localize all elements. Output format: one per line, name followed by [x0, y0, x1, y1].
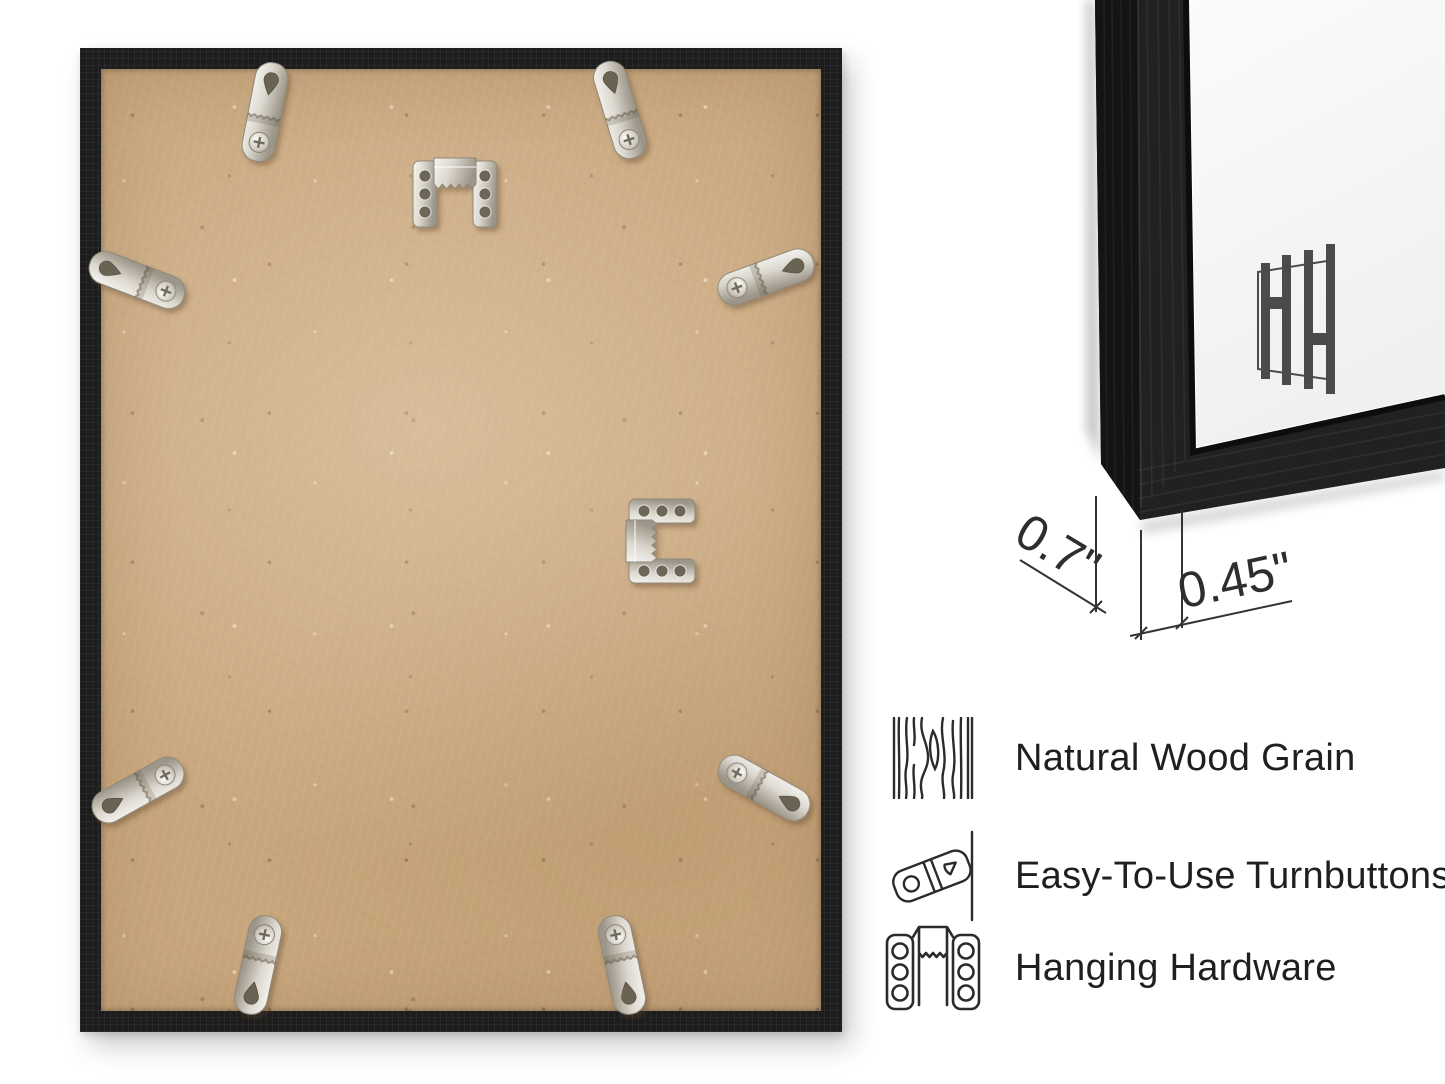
- product-image: 0.7" 0.45" Natural Wood G: [0, 0, 1445, 1084]
- feature-row-turnbuttons: Easy-To-Use Turnbuttons: [885, 826, 1445, 926]
- face-dimension-label: 0.45": [1173, 541, 1297, 620]
- turnbutton: [713, 244, 818, 309]
- turnbutton: [231, 913, 284, 1018]
- feature-label: Hanging Hardware: [1015, 947, 1337, 990]
- sawtooth-hanger: [626, 499, 695, 583]
- frame-corner-photo: 0.7" 0.45": [1000, 0, 1445, 660]
- wood-grain-icon: [885, 717, 981, 799]
- feature-label: Natural Wood Grain: [1015, 737, 1356, 780]
- hardware-overlay: [80, 48, 842, 1032]
- depth-dimension-label: 0.7": [1006, 503, 1110, 596]
- feature-label: Easy-To-Use Turnbuttons: [1015, 855, 1445, 898]
- turnbutton: [595, 913, 648, 1018]
- sawtooth-hanger: [413, 158, 497, 227]
- turnbutton: [590, 57, 651, 162]
- frame-back-photo: [80, 48, 842, 1032]
- mat-board: [1190, 0, 1445, 447]
- turnbutton: [712, 749, 815, 826]
- turnbutton: [239, 60, 290, 164]
- turnbutton-icon: [885, 829, 981, 923]
- feature-row-wood-grain: Natural Wood Grain: [885, 712, 1356, 804]
- turnbutton: [86, 751, 189, 828]
- turnbutton: [84, 247, 189, 314]
- hanging-hardware-icon: [885, 923, 981, 1013]
- feature-row-hanging-hardware: Hanging Hardware: [885, 920, 1337, 1016]
